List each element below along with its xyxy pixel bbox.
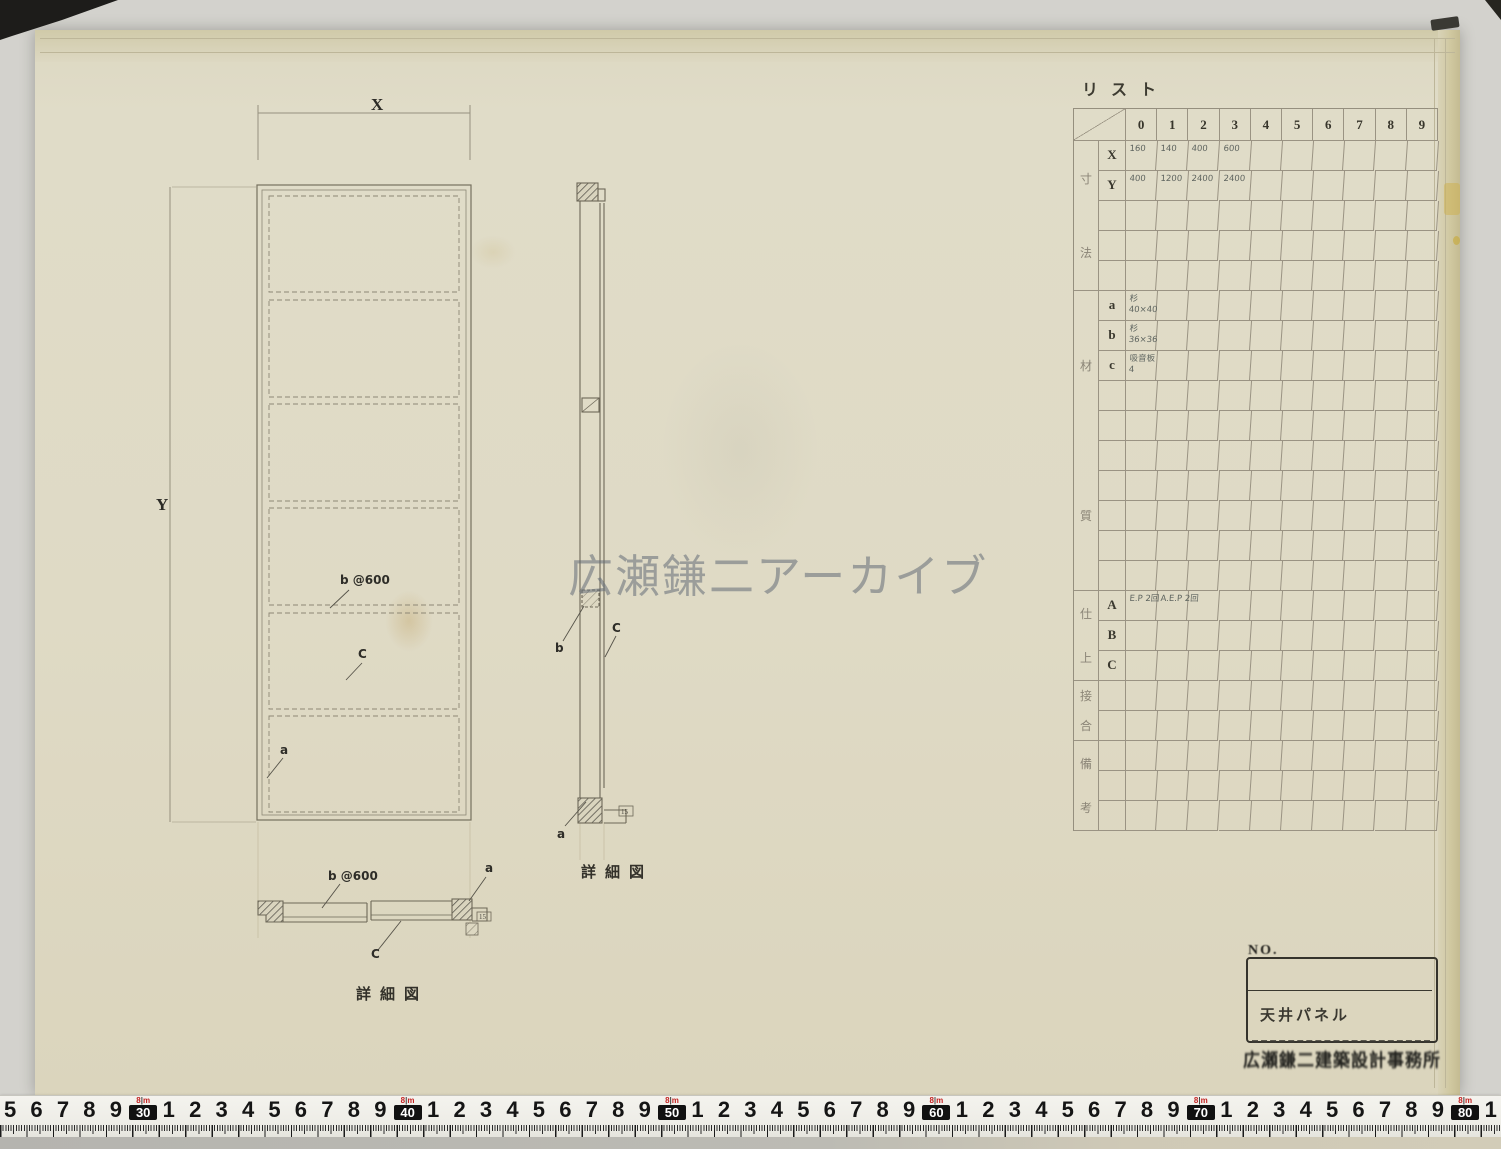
ruler-number: 9 — [110, 1097, 122, 1123]
table-cell — [1375, 381, 1408, 411]
table-cell — [1281, 501, 1314, 531]
table-column-header: 7 — [1344, 109, 1375, 141]
table-column-header: 0 — [1126, 109, 1157, 141]
plan-view — [257, 185, 471, 820]
table-cell — [1187, 291, 1220, 321]
table-cell — [1281, 321, 1314, 351]
table-column-header: 4 — [1251, 109, 1282, 141]
dimension-x — [258, 105, 470, 160]
ruler-decade-box: 8|m80 — [1451, 1096, 1479, 1120]
table-cell — [1312, 441, 1345, 471]
office-stamp: 広瀬鎌二建築設計事務所 — [1243, 1045, 1443, 1072]
table-cell — [1281, 681, 1314, 711]
list-table-title: リスト — [1082, 76, 1169, 100]
table-cell — [1250, 381, 1283, 411]
table-subrow-label — [1099, 501, 1126, 531]
table-cell — [1343, 771, 1376, 801]
table-cell — [1219, 771, 1252, 801]
ruler-number: 7 — [586, 1097, 598, 1123]
table-cell — [1219, 441, 1252, 471]
table-cell: E.P 2回 — [1125, 591, 1158, 621]
table-cell — [1312, 381, 1345, 411]
table-cell — [1250, 651, 1283, 681]
table-subrow-label — [1099, 531, 1126, 561]
ruler-number: 1 — [427, 1097, 439, 1123]
table-cell: 2400 — [1219, 171, 1252, 201]
table-cell — [1250, 501, 1283, 531]
table-cell: 400 — [1187, 141, 1220, 171]
ruler-number: 9 — [903, 1097, 915, 1123]
table-cell — [1343, 381, 1376, 411]
table-group-label: 材質 — [1074, 291, 1099, 591]
table-cell — [1125, 741, 1158, 771]
table-cell — [1156, 291, 1189, 321]
table-subrow-label — [1099, 471, 1126, 501]
table-cell — [1219, 351, 1252, 381]
table-column-header: 5 — [1282, 109, 1313, 141]
table-cell — [1187, 591, 1220, 621]
table-cell — [1281, 411, 1314, 441]
section-label-b: b — [555, 641, 564, 655]
table-cell — [1375, 681, 1408, 711]
table-cell — [1187, 711, 1220, 741]
table-cell — [1343, 471, 1376, 501]
table-cell — [1250, 711, 1283, 741]
table-cell — [1187, 351, 1220, 381]
table-cell — [1375, 471, 1408, 501]
ruler-decade-tag: 8|m — [1451, 1096, 1479, 1105]
table-cell: 160 — [1125, 141, 1158, 171]
table-cell — [1312, 171, 1345, 201]
table-cell — [1343, 441, 1376, 471]
table-cell: 杉 40×40 — [1125, 291, 1158, 321]
ruler-number: 4 — [771, 1097, 783, 1123]
table-cell — [1187, 501, 1220, 531]
table-subrow-label — [1099, 201, 1126, 231]
title-block-box — [1246, 957, 1438, 1043]
table-cell — [1250, 201, 1283, 231]
ruler-number: 7 — [321, 1097, 333, 1123]
section-tag: 15 — [621, 808, 629, 816]
table-group-label: 寸法 — [1074, 141, 1099, 291]
plan-label-a: a — [280, 743, 288, 757]
table-cell — [1125, 681, 1158, 711]
table-cell — [1250, 231, 1283, 261]
table-cell — [1250, 291, 1283, 321]
table-cell — [1343, 261, 1376, 291]
table-cell — [1156, 621, 1189, 651]
table-cell — [1219, 561, 1252, 591]
table-cell — [1125, 561, 1158, 591]
ruler-number: 2 — [718, 1097, 730, 1123]
table-column-header: 6 — [1313, 109, 1344, 141]
detail-caption: 詳細図 — [356, 985, 428, 1003]
table-cell — [1375, 201, 1408, 231]
table-cell — [1312, 501, 1345, 531]
ruler-number: 6 — [1352, 1097, 1364, 1123]
table-cell — [1343, 291, 1376, 321]
table-cell — [1125, 381, 1158, 411]
table-cell: 杉 36×36 — [1125, 321, 1158, 351]
table-cell — [1375, 531, 1408, 561]
table-subrow-label — [1099, 711, 1126, 741]
table-cell — [1156, 411, 1189, 441]
table-cell — [1187, 741, 1220, 771]
table-cell — [1312, 651, 1345, 681]
table-cell — [1219, 411, 1252, 441]
table-cell — [1219, 261, 1252, 291]
table-column-header: 2 — [1188, 109, 1219, 141]
ruler-number: 2 — [1247, 1097, 1259, 1123]
ruler-decade-tag: 8|m — [922, 1096, 950, 1105]
table-cell — [1250, 801, 1283, 831]
detail-label-a: a — [485, 861, 493, 875]
table-cell — [1312, 321, 1345, 351]
table-cell — [1375, 801, 1408, 831]
ruler-number: 8 — [1141, 1097, 1153, 1123]
ruler-number: 8 — [83, 1097, 95, 1123]
table-cell — [1406, 381, 1439, 411]
table-cell — [1156, 231, 1189, 261]
table-cell — [1312, 351, 1345, 381]
title-block-dots — [1252, 1040, 1430, 1043]
table-cell — [1343, 681, 1376, 711]
ruler-number: 5 — [4, 1097, 16, 1123]
table-cell — [1343, 321, 1376, 351]
table-cell — [1125, 801, 1158, 831]
table-cell — [1281, 591, 1314, 621]
table-cell — [1219, 291, 1252, 321]
table-cell — [1406, 711, 1439, 741]
table-cell — [1156, 381, 1189, 411]
table-cell — [1250, 261, 1283, 291]
ruler-number: 3 — [480, 1097, 492, 1123]
table-cell — [1250, 141, 1283, 171]
ruler-number: 5 — [268, 1097, 280, 1123]
table-cell — [1219, 711, 1252, 741]
ruler-number: 6 — [559, 1097, 571, 1123]
table-cell — [1156, 261, 1189, 291]
plan-label-c: C — [358, 647, 367, 661]
table-cell — [1406, 441, 1439, 471]
section-view — [577, 183, 633, 823]
table-cell — [1406, 261, 1439, 291]
table-cell — [1281, 621, 1314, 651]
ruler-number: 6 — [30, 1097, 42, 1123]
ruler-decade-box: 8|m30 — [129, 1096, 157, 1120]
ruler-number: 3 — [216, 1097, 228, 1123]
ruler-decade-tag: 8|m — [394, 1096, 422, 1105]
table-cell — [1125, 261, 1158, 291]
ruler-number: 4 — [1300, 1097, 1312, 1123]
section-label-c: C — [612, 621, 621, 635]
table-cell — [1406, 531, 1439, 561]
table-cell — [1250, 441, 1283, 471]
table-cell — [1219, 681, 1252, 711]
table-cell — [1406, 681, 1439, 711]
table-cell — [1312, 561, 1345, 591]
table-cell — [1250, 321, 1283, 351]
table-cell — [1281, 441, 1314, 471]
table-cell — [1125, 531, 1158, 561]
table-cell — [1187, 201, 1220, 231]
table-cell — [1281, 171, 1314, 201]
table-cell — [1312, 231, 1345, 261]
table-cell — [1375, 171, 1408, 201]
ruler-number: 1 — [691, 1097, 703, 1123]
ruler-number: 5 — [1326, 1097, 1338, 1123]
table-cell — [1125, 711, 1158, 741]
table-cell: 400 — [1125, 171, 1158, 201]
table-cell — [1250, 561, 1283, 591]
table-cell — [1187, 261, 1220, 291]
ruler-decade-tag: 8|m — [129, 1096, 157, 1105]
table-subrow-label — [1099, 681, 1126, 711]
ruler-number: 4 — [242, 1097, 254, 1123]
ruler-number: 3 — [744, 1097, 756, 1123]
table-cell — [1406, 351, 1439, 381]
ruler-number: 6 — [824, 1097, 836, 1123]
table-cell — [1406, 591, 1439, 621]
table-cell — [1312, 621, 1345, 651]
table-cell — [1406, 471, 1439, 501]
table-cell — [1281, 141, 1314, 171]
table-cell — [1156, 741, 1189, 771]
table-cell — [1187, 471, 1220, 501]
table-cell — [1125, 471, 1158, 501]
table-cell — [1219, 591, 1252, 621]
table-cell — [1187, 651, 1220, 681]
table-cell — [1375, 561, 1408, 591]
table-cell — [1406, 321, 1439, 351]
table-subrow-label: C — [1099, 651, 1126, 681]
table-cell — [1156, 201, 1189, 231]
table-cell — [1343, 621, 1376, 651]
table-cell — [1312, 291, 1345, 321]
ruler-decade-box: 8|m50 — [658, 1096, 686, 1120]
section-label-a: a — [557, 827, 565, 841]
bottom-detail — [258, 899, 491, 935]
table-column-header: 3 — [1220, 109, 1251, 141]
table-cell — [1406, 621, 1439, 651]
table-subrow-label: a — [1099, 291, 1126, 321]
table-cell — [1187, 561, 1220, 591]
table-cell — [1375, 411, 1408, 441]
ruler-number: 1 — [1485, 1097, 1497, 1123]
ruler-number: 8 — [877, 1097, 889, 1123]
table-cell — [1406, 501, 1439, 531]
table-cell — [1156, 501, 1189, 531]
table-cell — [1187, 231, 1220, 261]
list-table: 0123456789寸法X160140400600Y40012002400240… — [1073, 108, 1438, 831]
table-cell — [1250, 741, 1283, 771]
table-cell — [1312, 591, 1345, 621]
table-cell — [1281, 291, 1314, 321]
table-cell — [1187, 531, 1220, 561]
drawing-title: 天井パネル — [1260, 1004, 1350, 1025]
table-cell — [1312, 801, 1345, 831]
table-subrow-label: X — [1099, 141, 1126, 171]
ruler-decade-box: 8|m60 — [922, 1096, 950, 1120]
table-cell — [1219, 651, 1252, 681]
table-cell — [1125, 411, 1158, 441]
table-cell: 140 — [1156, 141, 1189, 171]
table-cell — [1406, 231, 1439, 261]
table-cell — [1125, 231, 1158, 261]
table-cell — [1187, 381, 1220, 411]
table-cell — [1125, 501, 1158, 531]
table-cell — [1375, 231, 1408, 261]
table-cell — [1343, 351, 1376, 381]
ruler-number: 1 — [163, 1097, 175, 1123]
table-cell — [1156, 561, 1189, 591]
table-cell — [1156, 441, 1189, 471]
table-cell — [1406, 561, 1439, 591]
table-cell — [1219, 801, 1252, 831]
ruler-number: 8 — [1405, 1097, 1417, 1123]
ruler-number: 7 — [1115, 1097, 1127, 1123]
table-group-label: 備考 — [1074, 741, 1099, 831]
table-subrow-label — [1099, 741, 1126, 771]
table-cell — [1125, 201, 1158, 231]
detail-label-b: b @600 — [328, 869, 378, 883]
table-cell — [1156, 351, 1189, 381]
table-subrow-label: b — [1099, 321, 1126, 351]
table-column-header: 1 — [1157, 109, 1188, 141]
ruler-decade-box: 8|m40 — [394, 1096, 422, 1120]
ruler-number: 6 — [295, 1097, 307, 1123]
table-cell — [1187, 771, 1220, 801]
table-subrow-label — [1099, 771, 1126, 801]
table-cell — [1312, 771, 1345, 801]
table-cell — [1219, 501, 1252, 531]
table-subrow-label: A — [1099, 591, 1126, 621]
table-cell — [1250, 411, 1283, 441]
ruler-number: 9 — [1167, 1097, 1179, 1123]
table-group-label: 仕上 — [1074, 591, 1099, 681]
table-cell — [1343, 171, 1376, 201]
table-cell — [1281, 771, 1314, 801]
ruler-number: 6 — [1088, 1097, 1100, 1123]
archive-watermark: 広瀬鎌二アーカイブ — [568, 540, 988, 605]
table-cell — [1375, 711, 1408, 741]
table-cell — [1375, 621, 1408, 651]
table-cell — [1343, 501, 1376, 531]
table-cell — [1406, 291, 1439, 321]
dimension-y — [170, 187, 256, 822]
table-cell — [1281, 201, 1314, 231]
table-cell — [1375, 141, 1408, 171]
table-cell — [1343, 651, 1376, 681]
ruler-number: 9 — [1432, 1097, 1444, 1123]
table-cell — [1375, 771, 1408, 801]
ruler-number: 7 — [1379, 1097, 1391, 1123]
measuring-tape-ruler: 567898|m301234567898|m401234567898|m5012… — [0, 1095, 1501, 1138]
table-column-header: 9 — [1407, 109, 1438, 141]
table-cell — [1312, 531, 1345, 561]
table-cell — [1250, 621, 1283, 651]
section-caption: 詳細図 — [581, 863, 653, 881]
table-cell — [1250, 351, 1283, 381]
table-cell — [1156, 771, 1189, 801]
table-cell — [1250, 531, 1283, 561]
table-cell — [1219, 741, 1252, 771]
ruler-number: 5 — [533, 1097, 545, 1123]
table-subrow-label — [1099, 231, 1126, 261]
table-cell — [1219, 531, 1252, 561]
table-cell — [1156, 651, 1189, 681]
table-cell — [1406, 411, 1439, 441]
table-cell — [1156, 321, 1189, 351]
table-cell — [1312, 711, 1345, 741]
table-cell — [1375, 591, 1408, 621]
table-cell — [1312, 471, 1345, 501]
ruler-number: 7 — [850, 1097, 862, 1123]
ruler-number: 3 — [1273, 1097, 1285, 1123]
table-cell — [1125, 771, 1158, 801]
table-cell — [1219, 381, 1252, 411]
ruler-number: 2 — [454, 1097, 466, 1123]
table-cell — [1187, 681, 1220, 711]
table-cell — [1343, 141, 1376, 171]
table-column-header: 8 — [1376, 109, 1407, 141]
ruler-number: 4 — [506, 1097, 518, 1123]
table-cell — [1281, 351, 1314, 381]
table-cell — [1125, 621, 1158, 651]
table-cell — [1219, 621, 1252, 651]
table-cell — [1156, 711, 1189, 741]
table-subrow-label — [1099, 441, 1126, 471]
table-cell — [1187, 411, 1220, 441]
table-cell — [1281, 261, 1314, 291]
table-cell — [1375, 441, 1408, 471]
ruler-number: 7 — [57, 1097, 69, 1123]
table-subrow-label — [1099, 381, 1126, 411]
dim-x-label: X — [371, 95, 384, 114]
ruler-number: 3 — [1009, 1097, 1021, 1123]
table-cell — [1219, 231, 1252, 261]
table-subrow-label: B — [1099, 621, 1126, 651]
table-cell — [1125, 651, 1158, 681]
table-cell — [1281, 231, 1314, 261]
ruler-number: 9 — [639, 1097, 651, 1123]
table-cell — [1281, 651, 1314, 681]
table-cell — [1375, 291, 1408, 321]
table-cell — [1343, 561, 1376, 591]
table-cell — [1375, 321, 1408, 351]
table-cell — [1343, 741, 1376, 771]
table-cell — [1281, 381, 1314, 411]
ruler-number: 1 — [1220, 1097, 1232, 1123]
ruler-decade-box: 8|m70 — [1187, 1096, 1215, 1120]
ruler-decade-tag: 8|m — [1187, 1096, 1215, 1105]
ruler-number: 8 — [348, 1097, 360, 1123]
table-cell — [1187, 801, 1220, 831]
table-cell — [1250, 771, 1283, 801]
section-leaders — [563, 606, 616, 826]
table-subrow-label: c — [1099, 351, 1126, 381]
table-cell — [1250, 471, 1283, 501]
table-group-label: 接合 — [1074, 681, 1099, 741]
table-cell — [1343, 801, 1376, 831]
table-cell — [1312, 741, 1345, 771]
ruler-number: 1 — [956, 1097, 968, 1123]
table-cell — [1343, 711, 1376, 741]
table-cell — [1250, 171, 1283, 201]
table-cell — [1281, 561, 1314, 591]
table-cell — [1312, 141, 1345, 171]
table-cell — [1406, 651, 1439, 681]
